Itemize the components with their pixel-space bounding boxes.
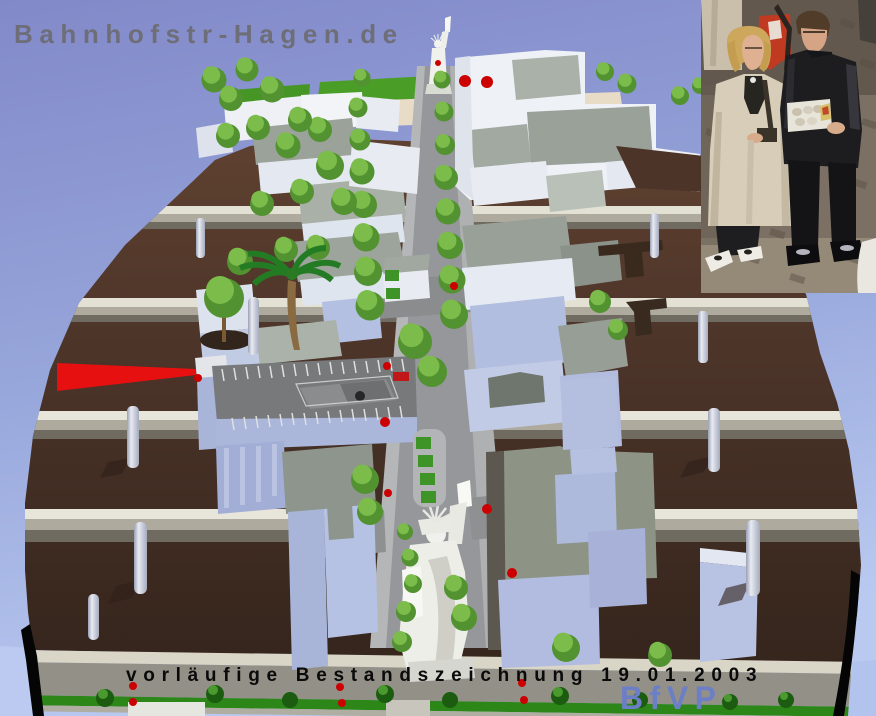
- svg-text:BfVP: BfVP: [620, 680, 722, 716]
- svg-text:Bahnhofstr-Hagen.de: Bahnhofstr-Hagen.de: [14, 19, 404, 49]
